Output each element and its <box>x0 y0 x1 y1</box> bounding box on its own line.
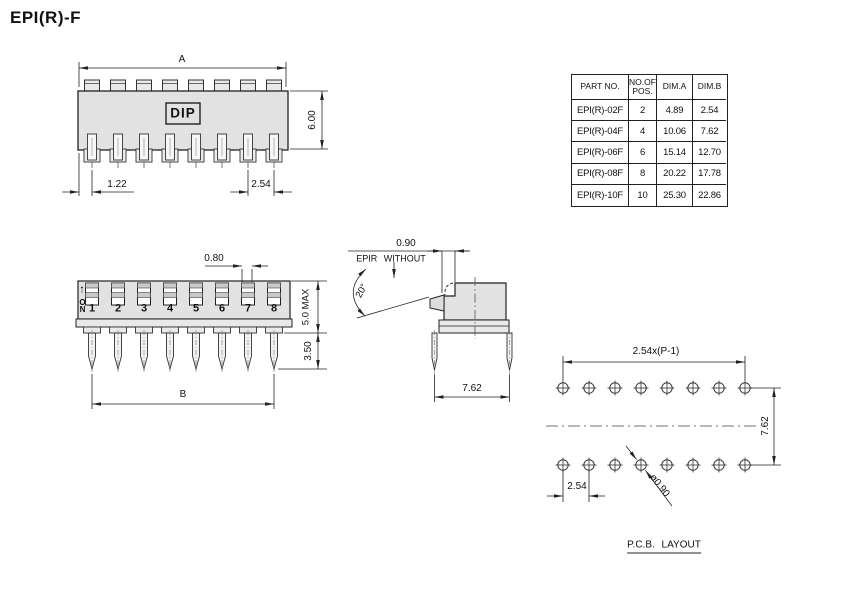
table-cell: 4.89 <box>657 100 693 121</box>
table-cell: 4 <box>629 121 657 142</box>
dim-a-label: A <box>179 55 186 65</box>
dim-0-90-label: 0.90 <box>396 239 415 249</box>
dim-span-label: 2.54x(P-1) <box>633 347 680 357</box>
dim-5-0-max-label: 5.0 MAX <box>301 289 311 325</box>
part-number-table: PART NO. NO.OF POS. DIM.A DIM.B EPI(R)-0… <box>571 74 728 207</box>
drawing-sheet: EPI(R)-F A 6.00 1.22 2.54 DIP 0.80 ↑ ON … <box>0 0 860 613</box>
front-view-pins <box>84 327 283 372</box>
dim-2-54-label: 2.54 <box>251 180 270 190</box>
table-cell: EPI(R)-02F <box>572 100 629 121</box>
table-cell: 22.86 <box>693 185 726 206</box>
table-cell: EPI(R)-10F <box>572 185 629 206</box>
dim-1-22-label: 1.22 <box>107 180 126 190</box>
pcb-holes-bottom-row <box>556 458 753 473</box>
dim-7-62-side-label: 7.62 <box>462 384 481 394</box>
table-cell: 17.78 <box>693 164 726 185</box>
dim-7-62-pcb-label: 7.62 <box>761 416 771 435</box>
switch-number-5: 5 <box>193 304 199 315</box>
table-cell: 6 <box>629 142 657 163</box>
page-title: EPI(R)-F <box>10 9 81 26</box>
switch-number-4: 4 <box>167 304 173 315</box>
dim-2-54-pcb-label: 2.54 <box>567 482 586 492</box>
table-cell: 2.54 <box>693 100 726 121</box>
switch-number-2: 2 <box>115 304 121 315</box>
table-cell: 7.62 <box>693 121 726 142</box>
front-view-drawing <box>76 266 327 409</box>
pcb-layout-caption: P.C.B. LAYOUT <box>627 541 701 554</box>
switch-number-8: 8 <box>271 304 277 315</box>
actuator-dashed-position <box>445 283 453 295</box>
dim-6mm-label: 6.00 <box>308 110 318 129</box>
on-direction-arrow-icon: ↑ <box>79 285 85 296</box>
table-cell: 2 <box>629 100 657 121</box>
switch-number-7: 7 <box>245 304 251 315</box>
drawing-canvas <box>0 0 860 613</box>
table-cell: 25.30 <box>657 185 693 206</box>
switch-number-1: 1 <box>89 304 95 315</box>
top-view-tabs <box>85 80 282 91</box>
actuator-lever <box>430 295 444 311</box>
col-header-no-of-pos: NO.OF POS. <box>629 75 657 100</box>
table-cell: 10.06 <box>657 121 693 142</box>
table-cell: EPI(R)-04F <box>572 121 629 142</box>
col-header-dim-a: DIM.A <box>657 75 693 100</box>
pcb-holes-top-row <box>556 381 753 396</box>
front-view-rail <box>76 319 292 327</box>
epir-without-note: EPIR WITHOUT <box>356 255 426 264</box>
dim-3-50-label: 3.50 <box>304 341 314 360</box>
table-cell: 12.70 <box>693 142 726 163</box>
on-label: ON <box>78 298 86 312</box>
switch-number-6: 6 <box>219 304 225 315</box>
col-header-part-no: PART NO. <box>572 75 629 100</box>
col-header-dim-b: DIM.B <box>693 75 726 100</box>
table-cell: EPI(R)-08F <box>572 164 629 185</box>
side-view-drawing <box>348 251 512 402</box>
dim-0-80-label: 0.80 <box>204 254 223 264</box>
table-cell: 20.22 <box>657 164 693 185</box>
dim-span-lines <box>563 356 745 381</box>
table-cell: 10 <box>629 185 657 206</box>
side-view-base <box>439 320 509 333</box>
dip-label: DIP <box>170 106 196 120</box>
table-cell: EPI(R)-06F <box>572 142 629 163</box>
table-cell: 8 <box>629 164 657 185</box>
table-cell: 15.14 <box>657 142 693 163</box>
top-view-drawing <box>62 62 328 196</box>
dim-0-80-lines <box>205 266 268 282</box>
front-view-body <box>78 281 290 319</box>
dim-b-label: B <box>180 390 187 400</box>
switch-number-3: 3 <box>141 304 147 315</box>
